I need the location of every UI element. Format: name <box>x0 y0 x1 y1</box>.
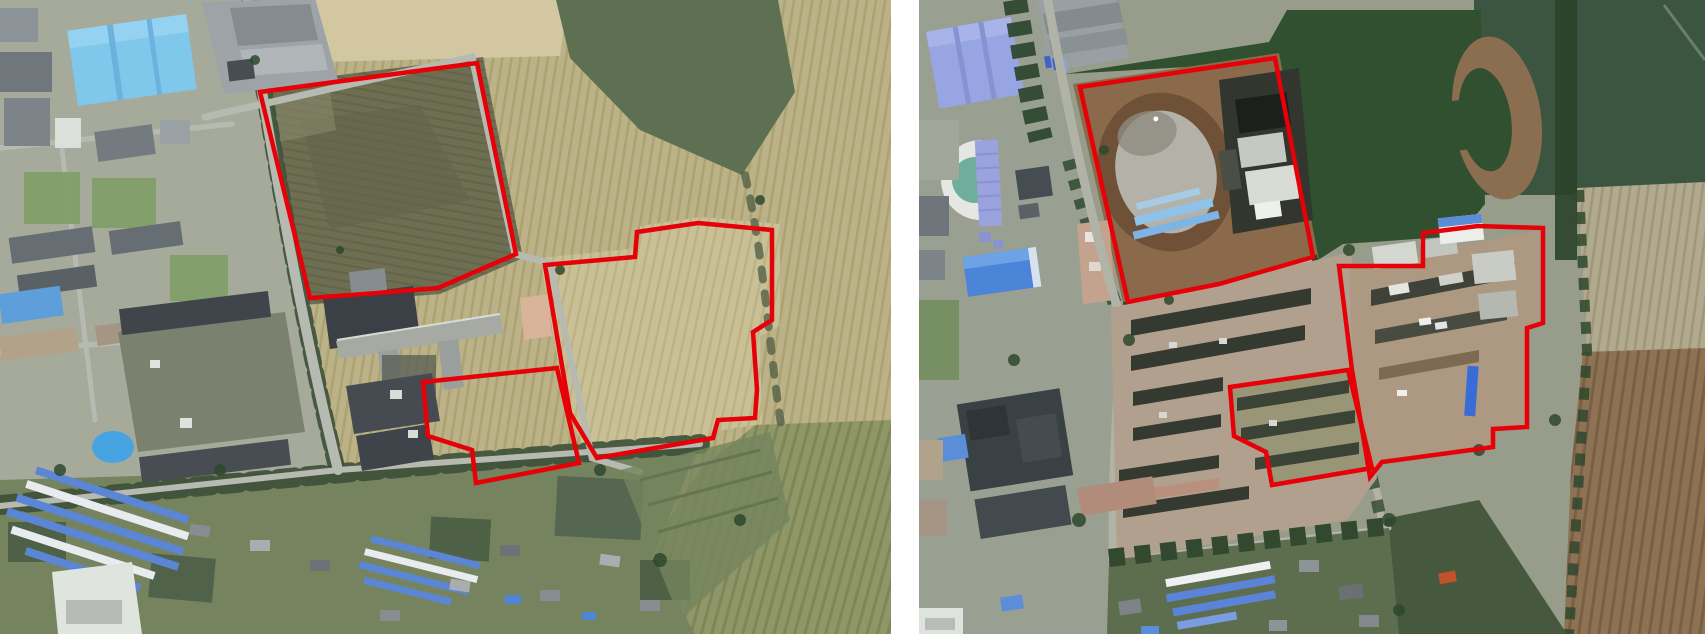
small-structure <box>390 390 402 399</box>
pale-striped-field <box>1577 182 1705 352</box>
white-building <box>66 600 122 624</box>
grey-roof <box>925 618 955 630</box>
white-building <box>55 118 81 148</box>
small-structure <box>408 430 418 438</box>
blue-tarp <box>505 595 521 604</box>
grey-building <box>0 8 38 42</box>
house <box>500 545 520 556</box>
large-dark-building <box>957 388 1073 491</box>
tree-column <box>1555 0 1577 260</box>
grey-building <box>0 52 52 92</box>
grey-block <box>1478 290 1519 320</box>
small-structure <box>993 240 1003 249</box>
blue-tarp <box>582 612 596 620</box>
light-slab <box>1237 132 1287 168</box>
blue-pond <box>92 431 134 463</box>
paved-yard <box>919 120 959 180</box>
lawn <box>92 178 156 228</box>
small-structure <box>979 232 991 242</box>
dark-building <box>1018 203 1040 220</box>
house <box>310 560 330 571</box>
house <box>380 610 400 621</box>
grey-building <box>4 98 50 146</box>
dark-building <box>1015 166 1053 200</box>
pale-field-top <box>302 0 568 62</box>
light-slab <box>1245 165 1299 206</box>
salmon-building <box>520 294 552 340</box>
house <box>1299 560 1319 572</box>
small-structure <box>180 418 192 428</box>
lawn <box>919 300 959 380</box>
house <box>250 540 270 551</box>
house <box>540 590 560 601</box>
tan-building <box>919 500 947 536</box>
white-van <box>1397 390 1407 396</box>
lawn <box>170 255 228 301</box>
grey-building <box>349 268 387 294</box>
paved-yard <box>919 380 963 436</box>
grey-building <box>160 120 190 144</box>
lavender-building <box>975 139 1002 226</box>
house <box>1269 620 1287 631</box>
grey-block <box>1472 250 1517 284</box>
house <box>1359 615 1379 627</box>
roof-detail <box>1089 262 1101 271</box>
lawn <box>24 172 80 224</box>
blue-tarp <box>1141 626 1159 634</box>
warehouse-stripe <box>230 4 318 46</box>
small-structure <box>150 360 160 368</box>
figure-two-satellite-images <box>0 0 1705 634</box>
grey-building <box>919 250 945 280</box>
tan-building <box>919 440 943 480</box>
house <box>640 600 660 611</box>
paved-yard <box>118 312 305 452</box>
grey-building <box>919 196 949 236</box>
satellite-image-right <box>919 0 1705 634</box>
satellite-image-left <box>0 0 891 634</box>
